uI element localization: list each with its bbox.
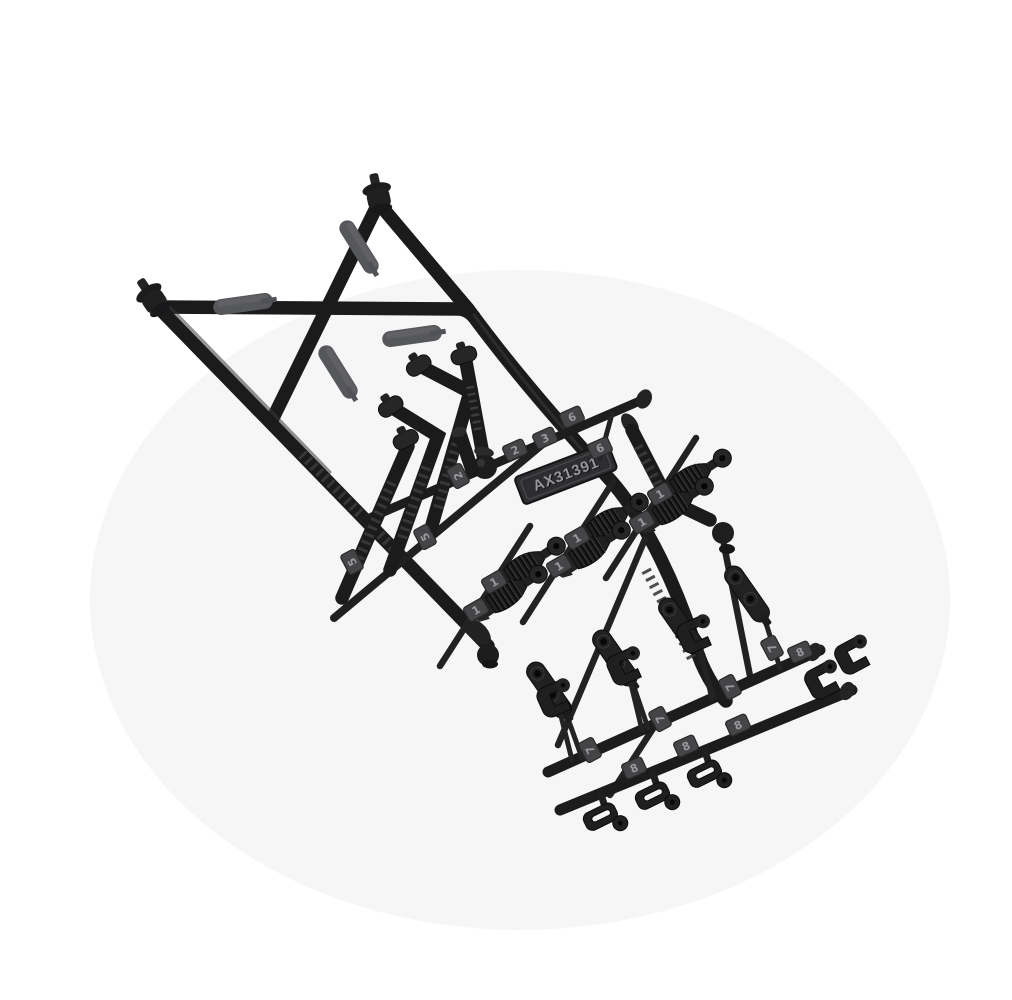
- product-photo: AX31391 AX31391: [0, 0, 1012, 1000]
- parts-tree-illustration: AX31391 AX31391: [0, 0, 1012, 1000]
- ball-joint: [712, 522, 734, 544]
